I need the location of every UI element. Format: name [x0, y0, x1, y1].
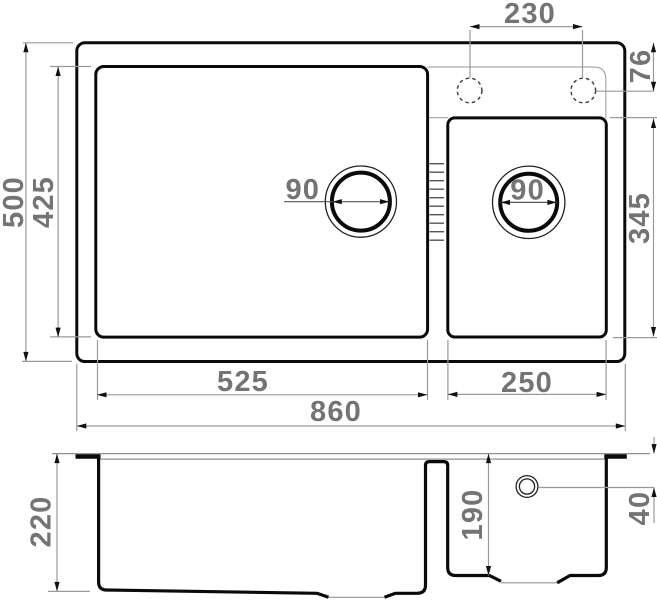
svg-text:230: 230 — [504, 0, 556, 30]
svg-text:250: 250 — [501, 367, 553, 399]
svg-text:425: 425 — [28, 176, 60, 228]
svg-text:90: 90 — [285, 174, 320, 206]
svg-text:220: 220 — [26, 496, 58, 548]
svg-text:76: 76 — [625, 49, 657, 84]
svg-text:90: 90 — [510, 174, 545, 206]
svg-text:190: 190 — [457, 489, 489, 541]
svg-text:525: 525 — [217, 366, 269, 398]
svg-text:345: 345 — [624, 192, 656, 244]
svg-text:40: 40 — [624, 491, 656, 526]
svg-text:860: 860 — [310, 396, 362, 428]
svg-text:500: 500 — [0, 176, 30, 228]
